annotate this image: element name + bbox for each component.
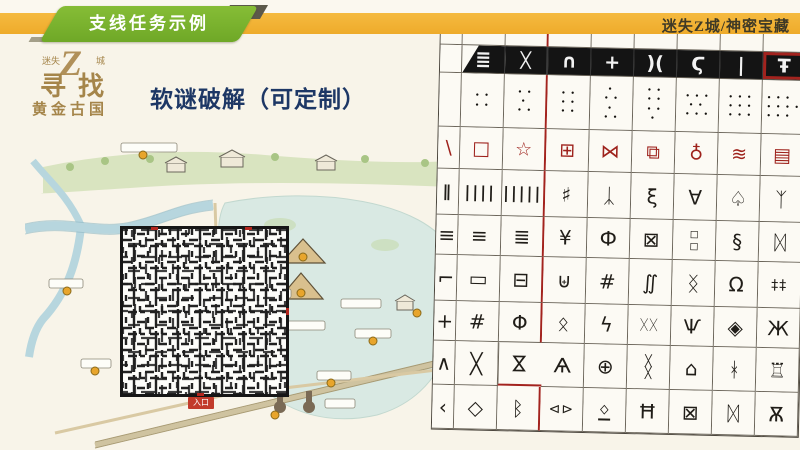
maze-mark [197,393,204,396]
symbol-cell: § [716,221,760,262]
symbol-cell: ⋈ [497,343,542,387]
symbol-cell: • • • • [461,73,505,128]
symbol-cell: ☆ [503,128,547,171]
symbol-cell: ||||| [502,170,546,217]
symbol-cell: • • • • • • • [633,77,677,132]
maze-puzzle [120,226,289,397]
symbol-cell: ∀ [674,174,718,221]
symbol-cell: ◻ ◻ [673,220,717,261]
symbol-cell: ᛉ [760,176,800,223]
page-title: 软谜破解（可定制） [150,80,366,114]
symbol-row: ⌐▭⊟⊎#∬ᛝΩ‡‡ [435,255,800,309]
symbol-cell: • • • • • [504,74,548,129]
symbol-cell: ╳ ╳ [627,345,671,390]
green-band [41,152,450,194]
symbol-cell: ξ [631,173,675,220]
symbol-cell: \ [438,127,461,169]
symbol-row: ∥|||||||||♯ᛣξ∀♤ᛉ [437,169,800,223]
symbol-cell: ⋈ [589,130,633,173]
brand-logo: 迷失 Z 城 寻找 黄金古国 [32,46,152,118]
symbol-cell: ≣ [462,45,506,74]
symbol-cell [439,73,462,127]
symbol-cell: Ϛ [677,50,721,79]
entrance-label: 入口 [188,397,214,409]
maze-pattern [123,229,286,394]
symbol-cell: ᚼ [713,347,757,392]
symbol-cell: ¥ [544,217,588,258]
symbol-row: ‹◇ᛒ⊲⊳ᛜĦ⊠ᛞѪ [432,385,799,437]
project-title: 迷失Z城/神密宝藏 [662,15,790,36]
symbol-cell: ᛝ [672,260,716,307]
symbol-cell: ⌐ [435,255,458,301]
symbol-cell: • • • • • • • • [676,78,720,133]
symbol-cell: ᛞ [759,222,800,263]
symbol-cell: ╳ [455,341,499,386]
symbol-cell: ♯ [545,171,589,218]
symbol-cell: ϟ [585,304,629,345]
island [371,239,399,251]
symbol-cell: ≣ [501,216,545,257]
symbol-cell: ∩ [548,47,592,76]
symbol-cell: Φ [499,302,543,343]
symbol-cell: ᛟ [542,303,586,344]
symbol-table: ≣ᚷ∩+)(Ϛ|Ŧ• • • •• • • • •• • • • • • • •… [431,22,800,438]
symbol-cell: ᚷ [505,46,549,75]
symbol-cell: ᛒ [497,386,541,431]
symbol-cell: ◇ [454,385,498,430]
symbol-cell: ⌂ [670,346,714,391]
symbol-cell: ♤ [717,175,761,222]
symbol-cell: • • • • • • • • • • [762,80,800,135]
maze-mark [286,308,289,315]
symbol-cell: Ф [587,218,631,259]
symbol-cell: ᚷᚷ [628,305,672,346]
symbol-cell: Ħ [626,389,670,434]
maze-mark [151,227,158,230]
symbol-cell: ♖ [756,348,800,393]
task-badge-label: 支线任务示例 [50,6,248,42]
park-map: 入口 [25,133,460,450]
maze-mark [245,227,252,230]
symbol-cell: ⊕ [584,344,628,389]
symbol-cell: ≋ [718,133,762,176]
symbol-cell: ⊠ [630,219,674,260]
symbol-cell: Ѧ [541,343,585,388]
symbol-cell [440,45,463,73]
symbol-cell: # [586,258,630,305]
symbol-row: • • • •• • • • •• • • • • • • • • • • ••… [439,73,800,135]
symbol-cell: + [591,48,635,77]
symbol-cell: ‹ [432,385,455,429]
symbol-cell: ᛣ [588,172,632,219]
symbol-cell: Ŧ [763,52,800,81]
symbol-cell: ∧ [433,341,456,385]
logo-text-golden-kingdom: 黄金古国 [32,98,108,119]
presentation-slide: 支线任务示例 迷失Z城/神密宝藏 迷失 Z 城 寻找 黄金古国 软谜破解（可定制… [0,0,800,450]
symbol-cell: + [434,301,457,341]
symbol-cell: ⧉ [632,131,676,174]
symbol-cell: ▭ [457,255,501,302]
symbol-cell: • • • • • • [547,75,591,130]
symbol-cell: ‡‡ [758,262,800,309]
symbol-cell: ∬ [629,259,673,306]
symbol-cell: )( [634,49,678,78]
symbol-cell: ♁ [675,132,719,175]
symbol-cell: ⊟ [500,256,544,303]
symbol-cell: ▤ [761,134,800,177]
symbol-cell: ≡ [436,215,459,255]
symbol-cell: # [456,301,500,342]
symbol-cell: ⊲⊳ [540,387,584,432]
symbol-cell: ◈ [714,307,758,348]
symbol-cell: Ж [757,308,800,349]
symbol-cell: ⊞ [546,129,590,172]
symbol-cell: ∥ [437,169,460,215]
symbol-cell: Ω [715,261,759,308]
symbol-cell: • • • • • • • • • [719,79,763,134]
task-badge: 支线任务示例 [40,6,259,42]
symbol-cell: ≡ [458,215,502,256]
symbol-cell: ⊎ [543,257,587,304]
symbol-cell: • • • • • • [590,76,634,131]
symbol-cell: ⊠ [669,390,713,435]
symbol-cell: Ѫ [755,392,799,437]
symbol-cell: |||| [459,169,503,216]
symbol-cell: □ [460,127,504,170]
symbol-cell: Ѱ [671,306,715,347]
symbol-cell: ᛞ [712,391,756,436]
symbol-cell: ᛜ [583,388,627,433]
symbol-cell: | [720,51,764,80]
